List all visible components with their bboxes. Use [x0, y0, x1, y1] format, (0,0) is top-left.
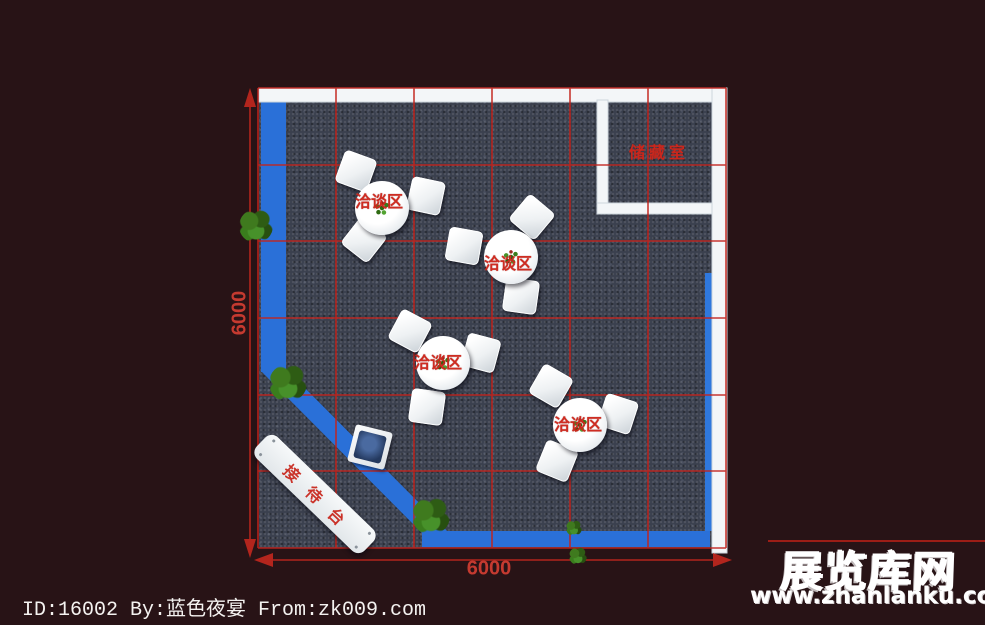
plant: [566, 520, 582, 536]
negotiation-area-label: 洽谈区: [554, 411, 602, 435]
dimension-width-label: 6000: [467, 558, 512, 581]
storage-room-label: 储藏室: [629, 139, 689, 163]
stool: [406, 176, 446, 216]
walkway-strips: [261, 102, 712, 547]
plant: [239, 209, 273, 243]
wall-right: [712, 88, 727, 553]
negotiation-area-label: 洽谈区: [484, 250, 532, 274]
wall-top: [259, 88, 727, 102]
stool: [408, 388, 446, 426]
walkway-bottom-strip: [422, 531, 710, 547]
walkway-right-strip: [705, 273, 712, 531]
stool: [444, 226, 483, 265]
plant: [269, 364, 307, 402]
plant: [569, 547, 587, 565]
negotiation-area-label: 洽谈区: [355, 188, 403, 212]
credit-line: ID:16002 By:蓝色夜宴 From:zk009.com: [22, 592, 426, 622]
plant: [412, 497, 450, 535]
floorplan-graphics: [0, 0, 985, 625]
dimension-height-label: 6000: [229, 291, 252, 336]
watermark-site-name: 展览库网: [749, 551, 985, 594]
booth-floorplan-render: 接待台 洽谈区 洽谈区 洽谈区 洽谈区 储藏室 6000 6000 ID:160…: [0, 0, 985, 625]
storage-wall-horizontal: [597, 203, 712, 214]
negotiation-area-label: 洽谈区: [414, 349, 462, 373]
cube-table-top: [353, 430, 387, 464]
watermark-logo: 展览库网 www.zhanlanku.com: [750, 551, 985, 608]
storage-wall-vertical: [597, 100, 608, 214]
